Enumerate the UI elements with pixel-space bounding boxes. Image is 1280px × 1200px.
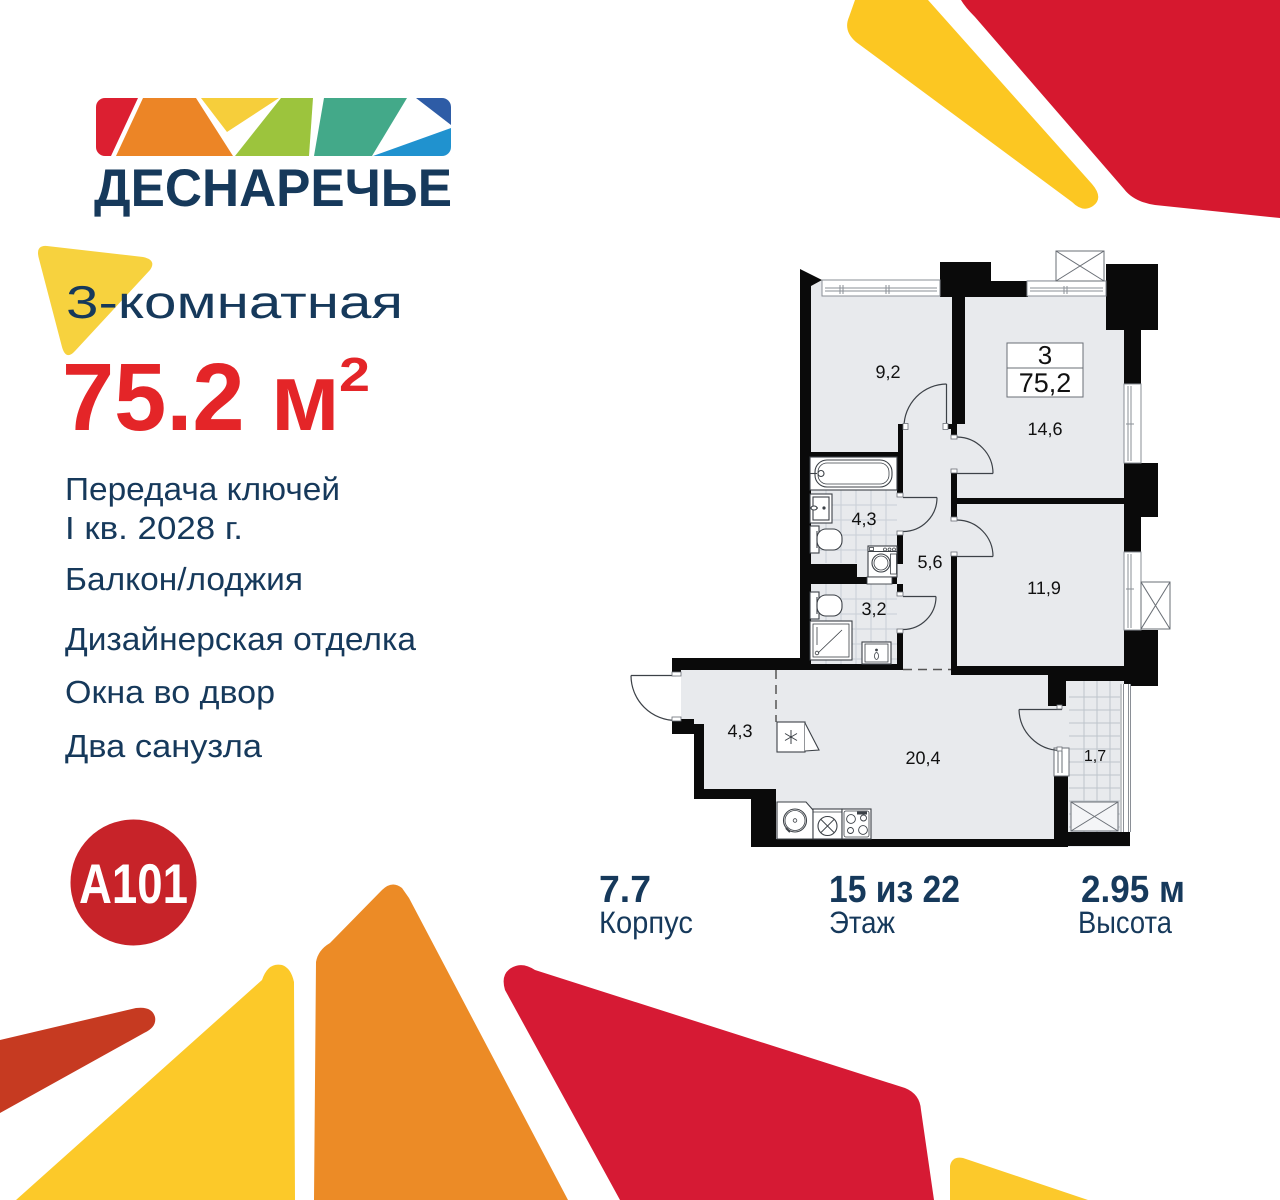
svg-text:Окна во двор: Окна во двор bbox=[65, 674, 275, 710]
svg-text:3,2: 3,2 bbox=[861, 599, 886, 619]
svg-text:75.2 м: 75.2 м bbox=[62, 344, 340, 451]
svg-text:Высота: Высота bbox=[1078, 905, 1173, 940]
svg-text:3: 3 bbox=[1038, 340, 1052, 370]
svg-text:Этаж: Этаж bbox=[829, 905, 895, 940]
svg-text:Дизайнерская отделка: Дизайнерская отделка bbox=[65, 621, 416, 657]
svg-text:2: 2 bbox=[339, 349, 370, 402]
svg-text:75,2: 75,2 bbox=[1019, 368, 1072, 398]
svg-text:4,3: 4,3 bbox=[851, 509, 876, 529]
svg-text:Передача ключей: Передача ключей bbox=[65, 471, 340, 507]
svg-text:9,2: 9,2 bbox=[875, 362, 900, 382]
svg-text:4,3: 4,3 bbox=[727, 721, 752, 741]
svg-text:Корпус: Корпус bbox=[599, 905, 693, 940]
svg-text:11,9: 11,9 bbox=[1027, 578, 1061, 598]
svg-text:Балкон/лоджия: Балкон/лоджия bbox=[65, 561, 303, 597]
svg-text:20,4: 20,4 bbox=[905, 748, 940, 768]
svg-text:Два санузла: Два санузла bbox=[65, 728, 262, 764]
svg-text:5,6: 5,6 bbox=[917, 552, 942, 572]
svg-text:3-комнатная: 3-комнатная bbox=[66, 276, 403, 328]
svg-text:I кв. 2028 г.: I кв. 2028 г. bbox=[65, 510, 243, 546]
svg-text:1,7: 1,7 bbox=[1084, 748, 1106, 765]
svg-text:А101: А101 bbox=[79, 852, 188, 915]
svg-text:ДЕСНАРЕЧЬЕ: ДЕСНАРЕЧЬЕ bbox=[94, 159, 452, 218]
svg-text:14,6: 14,6 bbox=[1027, 419, 1062, 439]
